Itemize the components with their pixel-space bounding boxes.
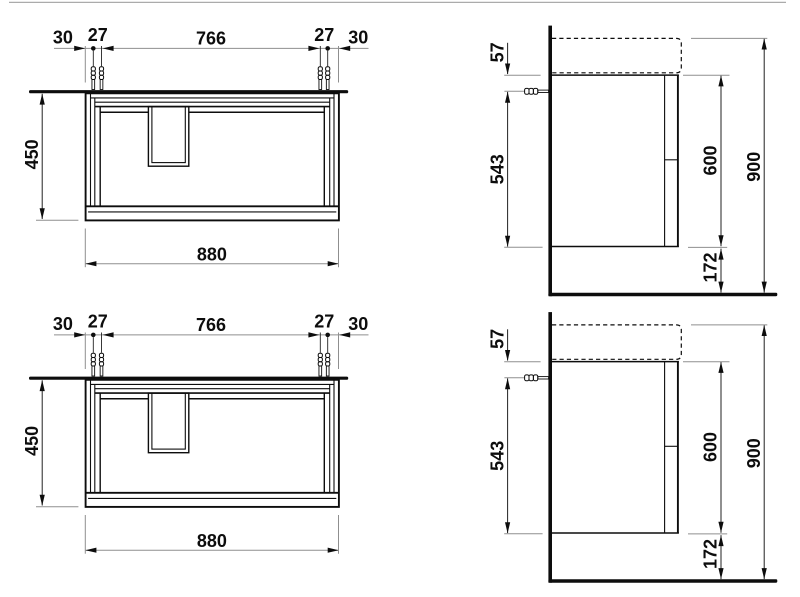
svg-text:172: 172: [701, 252, 721, 282]
svg-text:30: 30: [53, 314, 73, 334]
svg-text:880: 880: [197, 531, 227, 551]
svg-text:766: 766: [196, 315, 226, 335]
svg-text:900: 900: [744, 152, 764, 182]
svg-text:766: 766: [196, 28, 226, 48]
svg-text:27: 27: [314, 25, 334, 45]
svg-text:27: 27: [88, 25, 108, 45]
svg-text:172: 172: [701, 539, 721, 569]
svg-text:543: 543: [487, 154, 507, 184]
svg-text:543: 543: [487, 441, 507, 471]
svg-text:57: 57: [487, 329, 507, 349]
svg-text:30: 30: [348, 314, 368, 334]
svg-text:30: 30: [348, 27, 368, 47]
svg-text:450: 450: [22, 139, 42, 169]
svg-text:880: 880: [197, 244, 227, 264]
svg-text:450: 450: [22, 426, 42, 456]
svg-text:30: 30: [53, 27, 73, 47]
svg-text:57: 57: [487, 42, 507, 62]
svg-text:600: 600: [701, 145, 721, 175]
svg-text:27: 27: [88, 311, 108, 331]
svg-text:27: 27: [314, 311, 334, 331]
svg-text:600: 600: [701, 432, 721, 462]
svg-text:900: 900: [744, 438, 764, 468]
